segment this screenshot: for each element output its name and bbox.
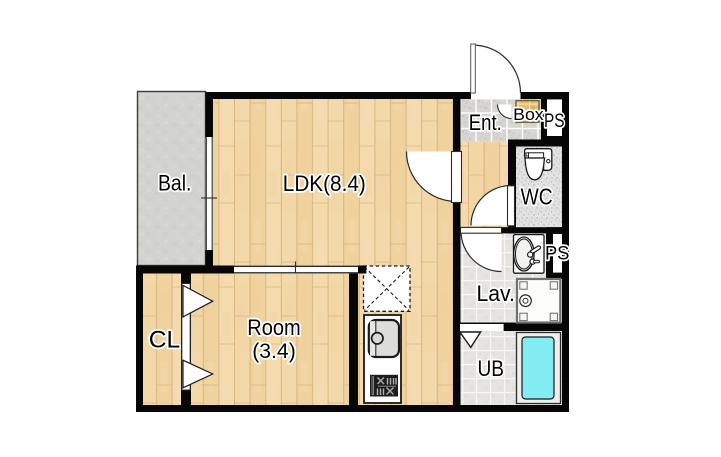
svg-text:PS: PS [545,243,570,265]
svg-text:UB: UB [477,356,504,381]
svg-text:Box: Box [513,106,544,124]
svg-text:WC: WC [521,183,553,209]
svg-text:(3.4): (3.4) [252,340,296,363]
svg-text:Ent.: Ent. [469,110,502,135]
svg-text:Room: Room [247,315,301,340]
svg-text:LDK(8.4): LDK(8.4) [283,171,366,196]
svg-text:Lav.: Lav. [476,281,515,306]
svg-text:CL: CL [149,327,181,354]
svg-text:Bal.: Bal. [158,171,192,196]
svg-text:PS: PS [544,110,565,132]
